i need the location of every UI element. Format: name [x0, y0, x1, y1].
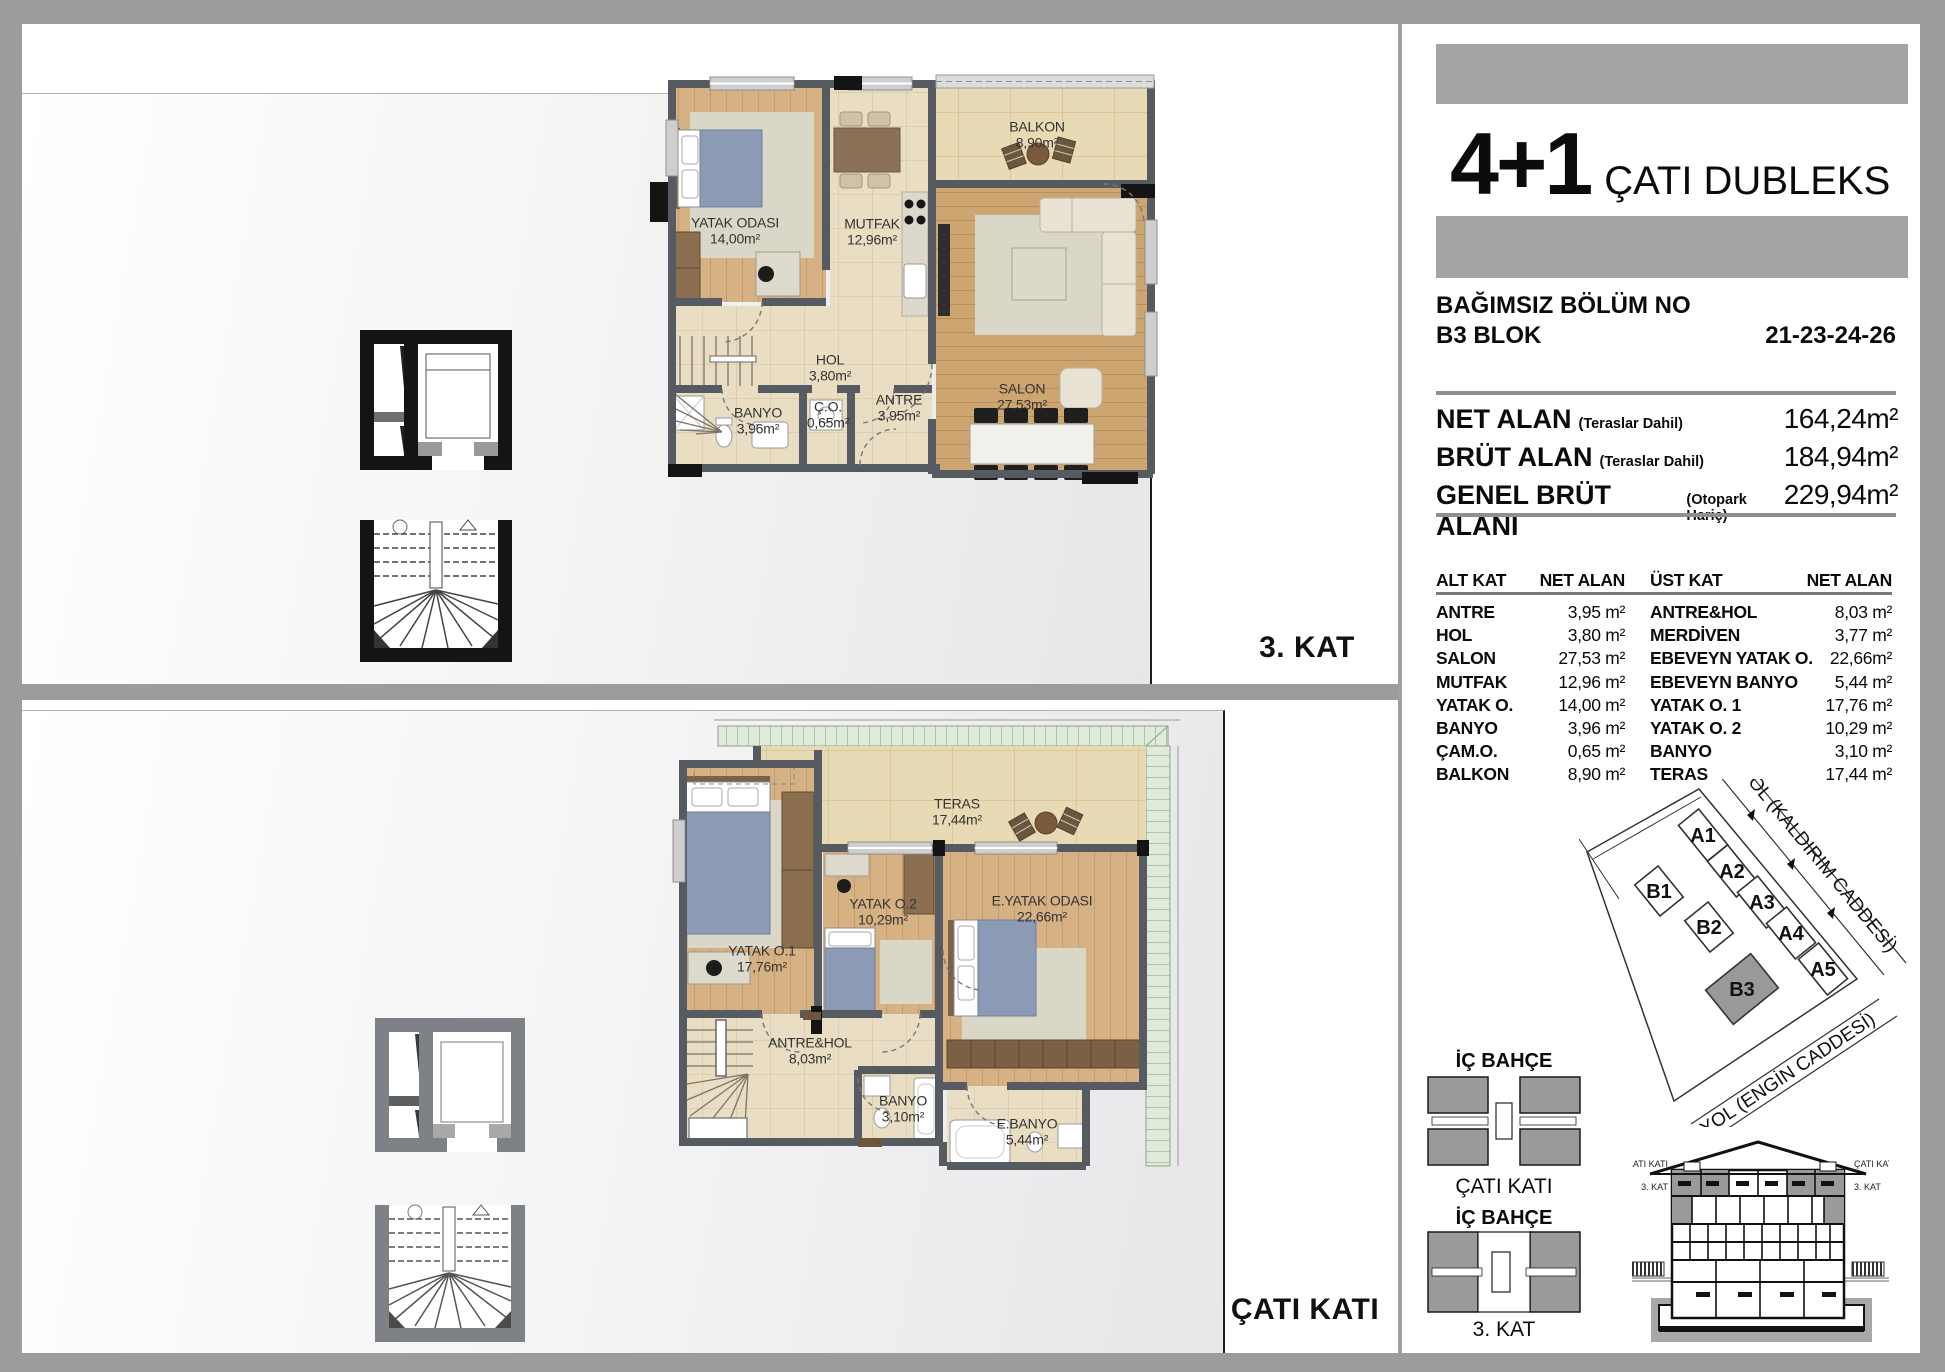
brochure-page: { "frame": { "floor1_label": "3. KAT", "…: [0, 0, 1945, 1372]
svg-text:ÇATI KATI: ÇATI KATI: [1854, 1159, 1889, 1169]
area-row-genel: GENEL BRÜT ALANI (Otopark Hariç) 229,94m…: [1436, 479, 1898, 542]
plan2-drawing: [22, 700, 1398, 1353]
unit-name: ÇATI DUBLEKS: [1604, 159, 1890, 204]
table-row: ÇAM.O.0,65 m²: [1436, 741, 1625, 764]
room-label-salon: SALON27,53m²: [997, 381, 1047, 412]
room-label-mutfak: MUTFAK12,96m²: [844, 216, 900, 247]
floor-plan-panel-catikati: TERAS17,44m² YATAK O.117,76m² YATAK O.21…: [22, 700, 1398, 1353]
block-name: B3 BLOK: [1436, 322, 1541, 350]
room-label-yatak-o2: YATAK O.210,29m²: [849, 896, 916, 927]
building-elevation: ÇATI KATI 3. KAT ÇATI KATI 3. KAT: [1632, 1140, 1889, 1345]
table-row: BANYO3,96 m²: [1436, 718, 1625, 741]
table-row: SALON27,53 m²: [1436, 648, 1625, 671]
room-table-header-alt: ALT KAT NET ALAN: [1436, 570, 1625, 591]
table-row: ANTRE3,95 m²: [1436, 602, 1625, 625]
block-row: B3 BLOK 21-23-24-26: [1436, 322, 1896, 350]
svg-text:A1: A1: [1690, 825, 1716, 847]
table-row: HOL3,80 m²: [1436, 625, 1625, 648]
floor-plan-panel-3kat: YATAK ODASI14,00m² MUTFAK12,96m² BALKON8…: [22, 24, 1398, 684]
floor-label-3kat: 3. KAT: [1259, 631, 1355, 665]
svg-text:3. KAT: 3. KAT: [1854, 1182, 1881, 1192]
table-row: MUTFAK12,96 m²: [1436, 672, 1625, 695]
room-table-ust-rows: ANTRE&HOL8,03 m² MERDİVEN3,77 m² EBEVEYN…: [1650, 602, 1892, 788]
key-diagram-catikati: [1426, 1075, 1582, 1167]
room-label-balkon: BALKON8,90m²: [1009, 119, 1065, 150]
room-label-yatak-o1: YATAK O.117,76m²: [728, 943, 795, 974]
info-sidebar: 4+1 ÇATI DUBLEKS BAĞIMSIZ BÖLÜM NO B3 BL…: [1398, 24, 1920, 1353]
header-bar-top: [1436, 44, 1908, 104]
elevator-shaft-diagram: [375, 1018, 525, 1152]
room-label-co: Ç.O.0,65m²: [807, 399, 849, 430]
table-row: BANYO3,10 m²: [1650, 741, 1892, 764]
room-label-hol: HOL3,80m²: [809, 352, 851, 383]
stairwell-diagram: [360, 520, 512, 662]
header-bar-bottom: [1436, 216, 1908, 278]
key2-top-label: İÇ BAHÇE: [1456, 1207, 1553, 1230]
area-row-net: NET ALAN (Teraslar Dahil) 164,24m²: [1436, 403, 1898, 435]
divider: [1436, 391, 1896, 395]
divider: [1436, 513, 1896, 517]
key1-top-label: İÇ BAHÇE: [1456, 1050, 1553, 1073]
table-row: EBEVEYN YATAK O.22,66m²: [1650, 648, 1892, 671]
table-row: ANTRE&HOL8,03 m²: [1650, 602, 1892, 625]
table-row: YATAK O. 210,29 m²: [1650, 718, 1892, 741]
room-label-yatak-odasi: YATAK ODASI14,00m²: [691, 215, 779, 246]
table-underline: [1436, 592, 1892, 595]
area-row-brut: BRÜT ALAN (Teraslar Dahil) 184,94m²: [1436, 441, 1898, 473]
room-label-antrehol: ANTRE&HOL8,03m²: [768, 1035, 852, 1066]
site-plan: A1 A2 A3 A4 A5 B1 B2 B3 YOL (KALDIRIM CA…: [1579, 779, 1929, 1127]
ground-hatch-right: [1852, 1262, 1884, 1276]
section-title: BAĞIMSIZ BÖLÜM NO: [1436, 292, 1691, 320]
unit-type: 4+1: [1450, 120, 1590, 208]
room-label-banyo2: BANYO3,10m²: [879, 1093, 927, 1124]
svg-text:ÇATI KATI: ÇATI KATI: [1632, 1159, 1668, 1169]
table-row: MERDİVEN3,77 m²: [1650, 625, 1892, 648]
svg-text:A3: A3: [1749, 892, 1775, 914]
unit-numbers: 21-23-24-26: [1765, 322, 1896, 350]
ground-hatch-left: [1632, 1262, 1664, 1276]
key1-bottom-label: ÇATI KATI: [1455, 1175, 1552, 1199]
key-diagram-3kat: [1426, 1230, 1582, 1314]
table-row: YATAK O. 117,76 m²: [1650, 695, 1892, 718]
room-table-alt-rows: ANTRE3,95 m² HOL3,80 m² SALON27,53 m² MU…: [1436, 602, 1625, 788]
floor-label-catikati: ÇATI KATI: [1231, 1293, 1379, 1327]
svg-text:A2: A2: [1719, 861, 1745, 883]
plan1-drawing: [22, 24, 1398, 684]
elevator-shaft-diagram: [360, 330, 512, 470]
stairwell-diagram: [375, 1205, 525, 1342]
table-row: YATAK O.14,00 m²: [1436, 695, 1625, 718]
room-label-teras: TERAS17,44m²: [932, 796, 982, 827]
svg-text:A5: A5: [1810, 959, 1836, 981]
svg-text:B2: B2: [1696, 917, 1722, 939]
svg-text:B1: B1: [1646, 881, 1672, 903]
room-label-eyatak: E.YATAK ODASI22,66m²: [992, 893, 1093, 924]
svg-text:3. KAT: 3. KAT: [1641, 1182, 1668, 1192]
room-label-banyo: BANYO3,96m²: [734, 405, 782, 436]
room-label-ebanyo: E.BANYO5,44m²: [997, 1116, 1058, 1147]
unit-title: 4+1 ÇATI DUBLEKS: [1450, 120, 1890, 208]
table-row: EBEVEYN BANYO5,44 m²: [1650, 672, 1892, 695]
svg-text:B3: B3: [1729, 979, 1755, 1001]
room-label-antre: ANTRE3,95m²: [876, 392, 922, 423]
svg-text:A4: A4: [1778, 923, 1804, 945]
room-table-header-ust: ÜST KAT NET ALAN: [1650, 570, 1892, 591]
key2-bottom-label: 3. KAT: [1473, 1318, 1536, 1342]
